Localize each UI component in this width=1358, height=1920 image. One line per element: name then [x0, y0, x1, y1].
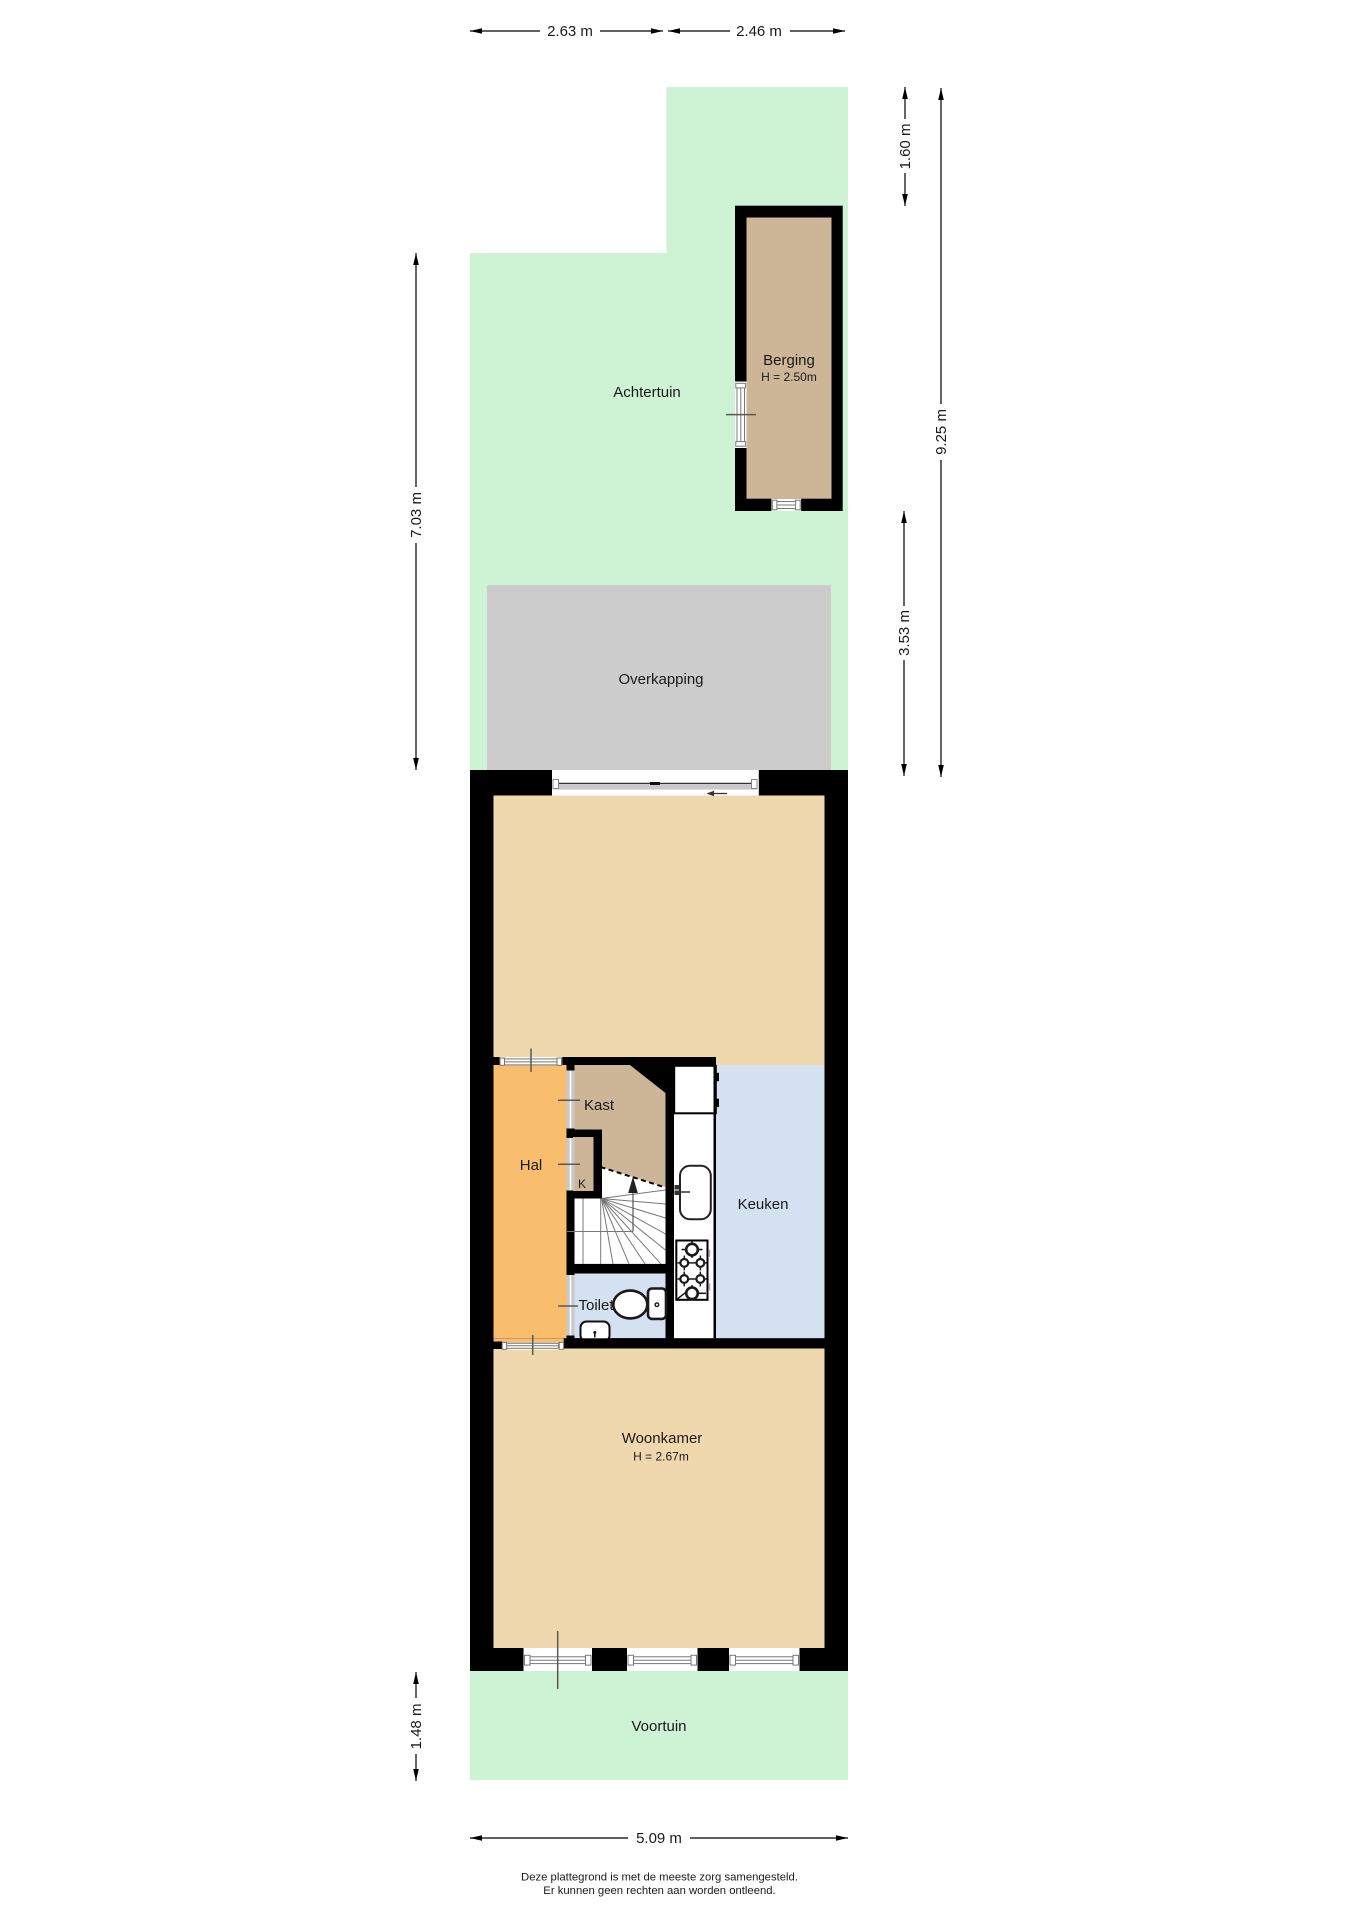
svg-text:Woonkamer: Woonkamer — [622, 1430, 703, 1447]
svg-text:H = 2.67m: H = 2.67m — [633, 1450, 689, 1464]
svg-text:3.53 m: 3.53 m — [896, 610, 913, 656]
svg-text:H = 2.50m: H = 2.50m — [761, 370, 817, 384]
svg-text:K: K — [578, 1177, 586, 1191]
svg-text:7.03 m: 7.03 m — [408, 492, 425, 538]
svg-text:2.63 m: 2.63 m — [547, 23, 593, 40]
svg-text:Hal: Hal — [520, 1157, 543, 1174]
svg-text:Voortuin: Voortuin — [631, 1718, 686, 1735]
svg-text:Deze plattegrond is met de mee: Deze plattegrond is met de meeste zorg s… — [521, 1872, 798, 1884]
svg-text:2.46 m: 2.46 m — [736, 23, 782, 40]
svg-text:Toilet: Toilet — [578, 1297, 614, 1314]
svg-text:Achtertuin: Achtertuin — [613, 384, 681, 401]
svg-text:9.25 m: 9.25 m — [933, 409, 950, 455]
svg-text:Keuken: Keuken — [738, 1196, 789, 1213]
svg-text:1.60 m: 1.60 m — [897, 124, 914, 170]
svg-text:Overkapping: Overkapping — [618, 671, 703, 688]
svg-text:Berging: Berging — [763, 352, 815, 369]
svg-text:Er kunnen geen rechten aan wor: Er kunnen geen rechten aan worden ontlee… — [543, 1885, 775, 1897]
svg-text:5.09 m: 5.09 m — [636, 1830, 682, 1847]
svg-text:Kast: Kast — [584, 1097, 615, 1114]
svg-text:1.48 m: 1.48 m — [408, 1704, 425, 1750]
